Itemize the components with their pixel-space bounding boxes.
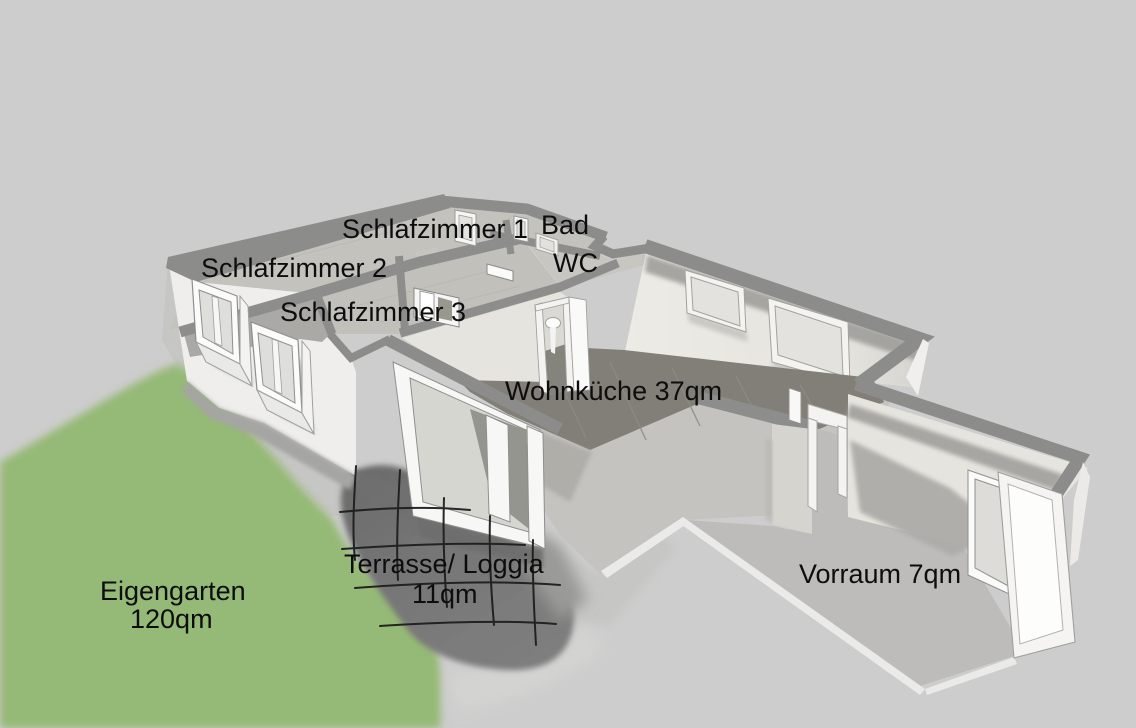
svg-text:Schlafzimmer 1: Schlafzimmer 1	[342, 214, 528, 244]
svg-text:WC: WC	[553, 248, 598, 278]
svg-text:Bad: Bad	[541, 210, 589, 240]
svg-text:Schlafzimmer 2: Schlafzimmer 2	[201, 253, 387, 283]
svg-text:Wohnküche 37qm: Wohnküche 37qm	[505, 376, 722, 406]
svg-text:Terrasse/ Loggia: Terrasse/ Loggia	[344, 549, 545, 579]
svg-text:120qm: 120qm	[130, 604, 213, 634]
svg-text:Schlafzimmer 3: Schlafzimmer 3	[280, 297, 466, 327]
svg-text:11qm: 11qm	[412, 579, 478, 609]
svg-text:Eigengarten: Eigengarten	[100, 576, 246, 606]
svg-text:Vorraum 7qm: Vorraum 7qm	[799, 559, 961, 589]
